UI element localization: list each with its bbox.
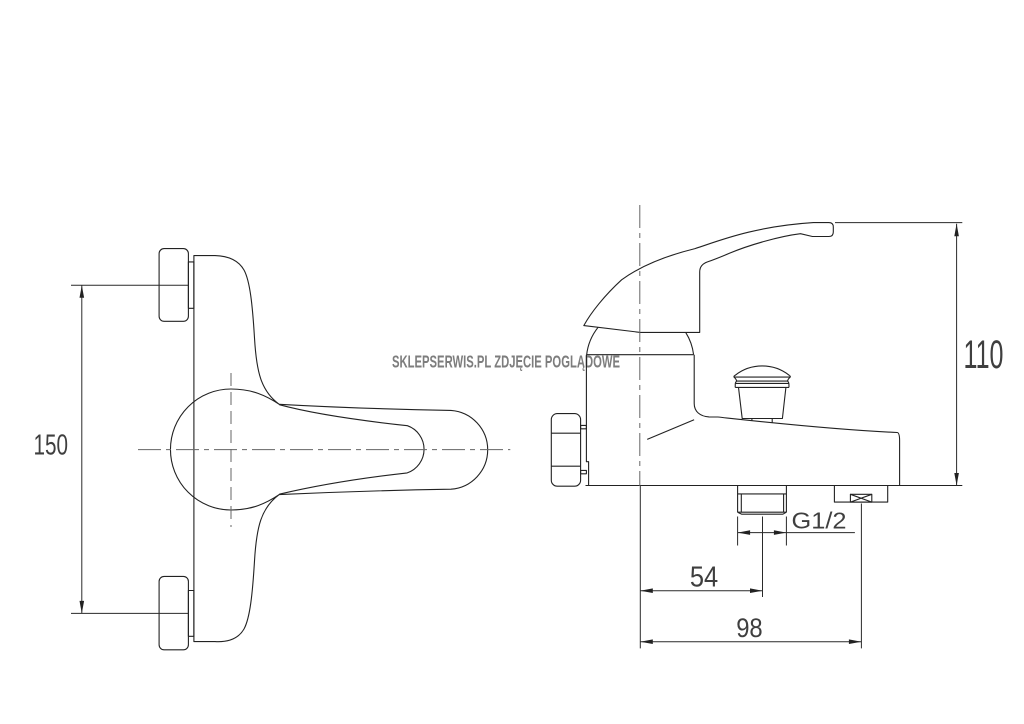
svg-text:150: 150 bbox=[34, 430, 69, 462]
svg-text:SKLEPSERWIS.PL ZDJĘCIE POGLĄDO: SKLEPSERWIS.PL ZDJĘCIE POGLĄDOWE bbox=[392, 351, 620, 371]
svg-text:G1/2: G1/2 bbox=[792, 508, 847, 534]
svg-text:54: 54 bbox=[690, 562, 718, 594]
svg-text:110: 110 bbox=[964, 333, 1004, 377]
svg-text:98: 98 bbox=[736, 613, 763, 643]
